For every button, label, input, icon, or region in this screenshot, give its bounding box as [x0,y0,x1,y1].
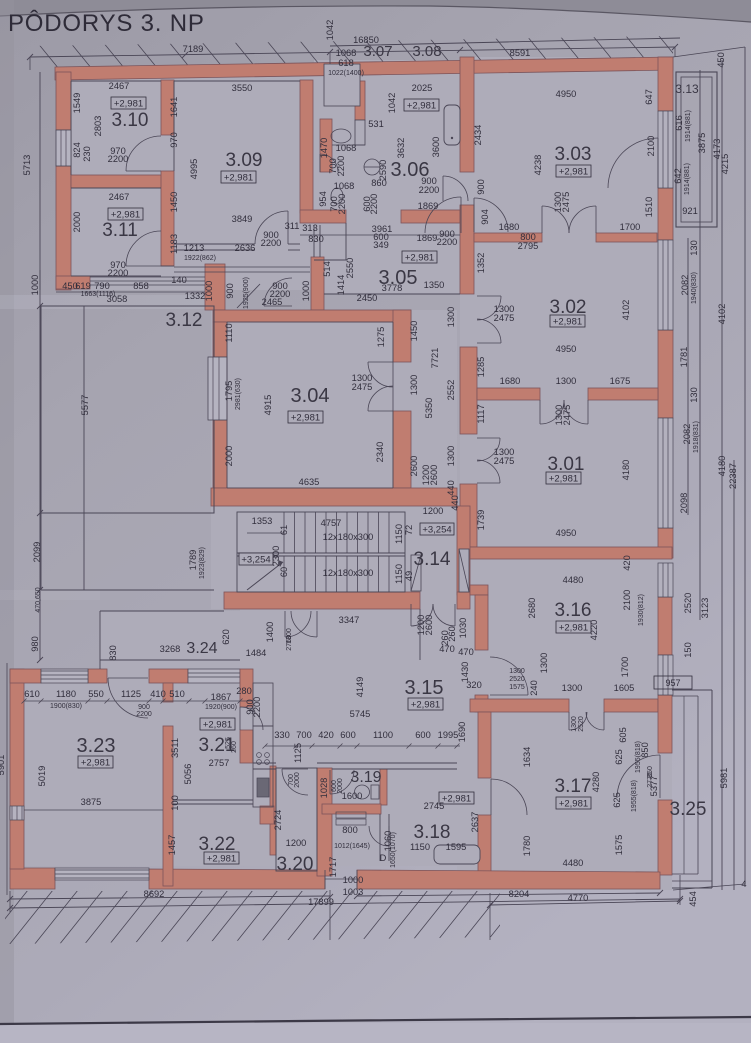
svg-text:PÔDORYS 3. NP: PÔDORYS 3. NP [8,9,205,37]
svg-text:+2,981: +2,981 [549,474,578,485]
svg-text:3.18: 3.18 [414,822,451,843]
svg-text:3.24: 3.24 [186,640,217,657]
svg-text:620: 620 [221,629,231,645]
svg-text:1914(881): 1914(881) [684,163,691,195]
svg-text:3123: 3123 [700,598,710,619]
svg-text:17899: 17899 [308,897,334,907]
svg-text:2000: 2000 [224,446,234,467]
svg-text:4915: 4915 [263,395,273,416]
svg-text:2467: 2467 [109,81,130,91]
svg-text:1634: 1634 [522,747,532,768]
svg-text:900: 900 [138,704,150,711]
svg-text:72: 72 [404,525,414,535]
svg-text:2757: 2757 [209,758,230,768]
svg-text:1484: 1484 [246,648,267,658]
svg-text:858: 858 [133,281,149,291]
svg-text:100: 100 [170,795,180,811]
svg-text:2520: 2520 [509,676,525,683]
svg-text:16850: 16850 [353,35,379,45]
svg-text:1400: 1400 [265,622,275,643]
svg-text:3.09: 3.09 [226,150,263,171]
svg-text:1350: 1350 [424,280,445,290]
svg-text:1781: 1781 [679,347,689,368]
svg-text:+2,981: +2,981 [559,167,588,178]
svg-text:1900(830): 1900(830) [50,703,82,710]
svg-text:140: 140 [171,275,187,285]
svg-text:1595: 1595 [446,842,467,852]
svg-text:1700: 1700 [620,657,630,678]
svg-text:2200: 2200 [419,185,440,195]
svg-text:3.20: 3.20 [277,854,314,875]
svg-text:1717: 1717 [328,857,338,878]
svg-text:550: 550 [88,689,104,699]
svg-text:531: 531 [368,119,384,129]
svg-text:1869: 1869 [418,201,439,211]
svg-text:454: 454 [688,891,698,907]
svg-text:313: 313 [302,223,318,233]
svg-text:510: 510 [169,689,185,699]
svg-text:4215: 4215 [720,154,730,175]
svg-text:3.07: 3.07 [363,43,392,60]
svg-text:1028: 1028 [319,778,329,799]
svg-text:3.10: 3.10 [112,110,149,131]
svg-text:8204: 8204 [509,889,530,899]
svg-text:514: 514 [322,261,332,277]
svg-text:1200: 1200 [423,506,444,516]
svg-text:130: 130 [689,387,699,403]
svg-text:+2,981: +2,981 [405,253,434,264]
svg-text:824: 824 [72,142,82,158]
svg-text:3.14: 3.14 [414,549,451,570]
svg-text:1150: 1150 [394,524,404,544]
svg-text:5901: 5901 [0,755,6,776]
svg-text:2981(630): 2981(630) [235,378,242,410]
svg-text:3.13: 3.13 [675,82,699,96]
svg-text:3268: 3268 [160,644,181,654]
svg-text:12x180x300: 12x180x300 [323,568,374,578]
svg-text:2520: 2520 [683,593,693,614]
svg-text:311: 311 [285,221,300,231]
svg-text:3632: 3632 [396,138,406,159]
svg-text:4950: 4950 [556,528,577,538]
svg-text:1042: 1042 [325,20,335,41]
svg-text:1300: 1300 [446,446,456,467]
svg-text:1300: 1300 [409,375,419,396]
svg-text:957: 957 [665,678,680,688]
svg-text:1549: 1549 [72,93,82,114]
svg-text:260: 260 [447,626,457,642]
svg-text:1739: 1739 [476,510,486,531]
svg-text:+2,981: +2,981 [291,413,320,424]
svg-text:2000: 2000 [337,778,344,794]
svg-text:49: 49 [404,571,414,581]
svg-text:3550: 3550 [232,83,253,93]
svg-text:+2,981: +2,981 [442,794,471,805]
svg-text:1930(812): 1930(812) [638,594,645,626]
svg-text:3.16: 3.16 [555,600,592,621]
svg-text:2082: 2082 [680,275,690,296]
svg-text:1867: 1867 [211,692,232,702]
svg-text:800: 800 [342,825,358,835]
svg-text:2200: 2200 [437,237,458,247]
svg-text:790: 790 [94,281,110,291]
svg-text:1300: 1300 [509,668,525,675]
svg-text:2760: 2760 [286,635,293,651]
svg-text:1275: 1275 [376,327,386,348]
svg-text:1300: 1300 [556,376,577,386]
svg-text:2200: 2200 [108,268,129,278]
svg-text:2803: 2803 [93,116,103,137]
svg-text:1125: 1125 [121,689,141,699]
svg-text:3.15: 3.15 [405,677,444,699]
svg-text:470,650: 470,650 [35,587,42,612]
svg-text:1352: 1352 [476,253,486,274]
svg-text:349: 349 [373,240,389,250]
svg-text:1795: 1795 [224,381,234,402]
svg-text:230: 230 [82,146,92,162]
svg-text:240: 240 [529,680,539,696]
svg-text:3.17: 3.17 [555,776,592,797]
svg-text:4180: 4180 [717,456,727,477]
svg-text:3778: 3778 [382,283,403,293]
svg-text:5745: 5745 [350,709,371,719]
svg-text:3.11: 3.11 [102,220,138,241]
svg-text:980: 980 [30,636,40,652]
svg-text:1068: 1068 [336,48,357,58]
svg-text:4757: 4757 [321,518,342,528]
svg-text:2795: 2795 [518,241,539,251]
svg-text:1510: 1510 [644,197,654,218]
svg-text:8591: 8591 [510,48,531,58]
svg-text:1000: 1000 [30,275,40,296]
svg-text:1285: 1285 [476,357,486,378]
svg-text:3875: 3875 [81,797,102,807]
svg-text:2600: 2600 [409,456,419,477]
svg-text:2200: 2200 [261,238,282,248]
svg-text:2025: 2025 [412,83,433,93]
svg-text:1641: 1641 [169,97,179,118]
svg-text:260: 260 [231,741,238,753]
svg-text:1940(830): 1940(830) [691,272,698,304]
svg-text:1030: 1030 [458,618,468,639]
svg-text:1430: 1430 [460,662,470,683]
svg-text:5377: 5377 [649,776,659,797]
svg-text:1150: 1150 [410,842,430,852]
svg-text:1663(1116): 1663(1116) [81,291,116,298]
svg-text:1690: 1690 [457,722,467,743]
svg-text:1920(900): 1920(900) [205,704,237,711]
svg-text:1042: 1042 [387,93,397,114]
svg-text:61: 61 [279,525,289,535]
svg-text:605: 605 [618,727,628,743]
svg-text:900: 900 [476,179,486,195]
svg-text:700: 700 [296,730,312,740]
svg-text:1923(829): 1923(829) [199,547,206,579]
svg-text:1869: 1869 [417,233,438,243]
svg-text:2100: 2100 [622,590,632,611]
svg-text:1000: 1000 [301,281,311,302]
svg-text:1117: 1117 [476,404,486,423]
svg-text:2745: 2745 [424,801,445,811]
svg-text:2200: 2200 [136,711,152,718]
svg-text:1675: 1675 [610,376,631,386]
svg-text:+3,254: +3,254 [241,555,270,566]
svg-text:2550: 2550 [345,258,355,279]
svg-text:420: 420 [318,730,334,740]
svg-text:1450: 1450 [169,192,179,213]
svg-text:1700: 1700 [620,222,641,232]
svg-text:618: 618 [338,58,354,68]
svg-text:1605: 1605 [614,683,635,693]
svg-text:2467: 2467 [109,192,130,202]
svg-text:2475: 2475 [561,192,571,213]
svg-text:600: 600 [415,730,431,740]
svg-text:2100: 2100 [646,136,656,157]
svg-text:4: 4 [741,879,746,889]
svg-text:1125: 1125 [293,743,303,763]
svg-text:470: 470 [458,647,474,657]
svg-text:4238: 4238 [533,155,543,176]
svg-text:4635: 4635 [299,477,320,487]
svg-text:60: 60 [279,567,289,577]
svg-text:4770: 4770 [568,893,589,903]
svg-text:2680: 2680 [527,598,537,619]
svg-text:5981: 5981 [719,768,729,789]
svg-text:1300: 1300 [571,716,578,732]
svg-text:4220: 4220 [589,620,599,641]
svg-text:600: 600 [340,730,356,740]
svg-text:860: 860 [371,178,387,188]
svg-text:1100: 1100 [373,730,393,740]
svg-text:3.04: 3.04 [291,385,330,407]
svg-text:2475: 2475 [494,456,515,466]
svg-text:1353: 1353 [252,516,273,526]
svg-text:921: 921 [682,206,698,216]
svg-text:440: 440 [446,480,456,496]
svg-text:330: 330 [274,730,290,740]
svg-text:5577: 5577 [80,395,90,416]
svg-text:5019: 5019 [37,766,47,787]
svg-text:1068: 1068 [334,181,355,191]
svg-text:+2,981: +2,981 [81,758,110,769]
svg-text:1183: 1183 [169,234,179,254]
svg-text:2637: 2637 [470,812,480,833]
svg-text:1003: 1003 [343,887,364,897]
svg-text:440: 440 [450,495,460,511]
svg-text:+2,981: +2,981 [111,210,140,221]
svg-text:2200: 2200 [252,697,262,718]
svg-text:2082: 2082 [682,424,692,445]
svg-text:5056: 5056 [183,764,193,785]
svg-text:3875: 3875 [697,133,707,154]
svg-text:1068: 1068 [336,143,357,153]
svg-text:830: 830 [308,234,324,244]
svg-text:2520: 2520 [578,716,585,732]
svg-text:2300: 2300 [271,546,281,567]
svg-text:1470: 1470 [319,138,329,159]
svg-text:+2,981: +2,981 [224,173,253,184]
svg-text:1000: 1000 [343,875,364,885]
svg-text:130: 130 [689,240,699,256]
svg-text:619: 619 [75,281,91,291]
svg-text:4102: 4102 [621,300,631,321]
svg-text:4480: 4480 [563,575,584,585]
svg-text:+2,981: +2,981 [559,799,588,810]
svg-text:2200: 2200 [108,154,129,164]
svg-text:2200: 2200 [336,156,346,177]
svg-text:12x180x300: 12x180x300 [323,532,374,542]
svg-text:1200: 1200 [286,838,307,848]
svg-text:1457: 1457 [167,835,177,856]
svg-text:1780: 1780 [522,836,532,857]
svg-text:1300: 1300 [446,307,456,328]
svg-text:+2,981: +2,981 [407,101,436,112]
svg-text:3.19: 3.19 [350,769,381,786]
svg-text:610: 610 [24,689,40,699]
svg-text:+2,981: +2,981 [203,720,232,731]
svg-text:1925(900): 1925(900) [243,277,250,309]
svg-text:4102: 4102 [717,304,727,325]
svg-text:1995: 1995 [438,730,459,740]
svg-text:1918(831): 1918(831) [693,421,700,453]
svg-text:616: 616 [674,115,684,131]
svg-text:625: 625 [612,792,622,808]
svg-text:2600: 2600 [429,465,439,486]
svg-text:22387: 22387 [728,463,738,489]
svg-text:647: 647 [644,89,654,105]
svg-text:1022(1400): 1022(1400) [328,70,364,77]
svg-text:1680: 1680 [499,222,520,232]
svg-text:+3,254: +3,254 [422,525,451,536]
svg-text:+2,981: +2,981 [411,700,440,711]
svg-text:1000: 1000 [204,281,214,302]
svg-text:3.03: 3.03 [555,144,592,165]
svg-text:2000: 2000 [72,212,82,233]
svg-text:1150: 1150 [394,564,404,584]
svg-text:7189: 7189 [183,44,204,54]
svg-text:625: 625 [614,749,624,765]
svg-text:450: 450 [716,52,726,68]
svg-text:1955(818): 1955(818) [631,780,638,812]
svg-text:1600: 1600 [342,791,363,801]
svg-text:1300: 1300 [539,653,549,674]
svg-text:2724: 2724 [273,810,283,831]
svg-text:150: 150 [683,642,693,658]
svg-text:1180: 1180 [56,689,76,699]
svg-text:3347: 3347 [339,615,360,625]
svg-text:954: 954 [318,191,328,207]
svg-text:280: 280 [236,686,252,696]
svg-text:2475: 2475 [562,405,572,426]
svg-text:2636: 2636 [235,243,256,253]
svg-text:3600: 3600 [431,137,441,158]
svg-text:5350: 5350 [424,398,434,419]
svg-text:1332: 1332 [185,291,206,301]
svg-text:3511: 3511 [170,738,180,758]
svg-text:900: 900 [225,283,235,299]
svg-text:2434: 2434 [473,125,483,146]
svg-text:1300: 1300 [562,683,583,693]
svg-text:+2,981: +2,981 [553,317,582,328]
svg-text:830: 830 [108,645,118,661]
svg-text:2099: 2099 [32,542,42,563]
svg-text:1575: 1575 [614,835,624,856]
svg-text:904: 904 [480,209,490,225]
svg-text:3849: 3849 [232,214,253,224]
svg-text:970: 970 [169,132,179,148]
svg-text:2200: 2200 [369,194,379,215]
svg-text:1650(1070): 1650(1070) [390,832,397,868]
svg-text:2552: 2552 [446,380,456,401]
svg-text:4149: 4149 [355,677,365,698]
svg-text:410: 410 [150,689,166,699]
svg-text:2600: 2600 [424,615,434,636]
svg-text:+2,981: +2,981 [114,99,143,110]
svg-text:3.08: 3.08 [412,43,441,60]
svg-text:420: 420 [622,555,632,571]
svg-text:2475: 2475 [494,313,515,323]
svg-text:1914(881): 1914(881) [685,110,692,142]
svg-text:4950: 4950 [556,344,577,354]
svg-text:2450: 2450 [357,293,378,303]
svg-text:3.23: 3.23 [77,735,116,757]
svg-text:7721: 7721 [430,348,440,369]
svg-text:4995: 4995 [189,159,199,180]
svg-text:1012(1645): 1012(1645) [334,843,370,850]
svg-text:2098: 2098 [679,493,689,514]
svg-text:4180: 4180 [621,460,631,481]
svg-text:1213: 1213 [184,243,205,253]
svg-text:4480: 4480 [563,858,584,868]
svg-text:470: 470 [439,644,455,654]
svg-text:2340: 2340 [375,442,385,463]
svg-text:1789: 1789 [188,550,198,571]
svg-text:5713: 5713 [22,155,32,176]
svg-text:3.12: 3.12 [166,310,203,331]
svg-text:1955(818): 1955(818) [635,741,642,773]
svg-text:8692: 8692 [144,889,165,899]
svg-text:4280: 4280 [591,772,601,793]
svg-text:1922(862): 1922(862) [184,255,216,262]
svg-text:2465: 2465 [262,297,283,307]
svg-text:2200: 2200 [337,194,347,215]
svg-text:D: D [380,853,387,863]
svg-text:1575: 1575 [509,684,525,691]
svg-text:642: 642 [673,168,683,184]
svg-text:+2,981: +2,981 [207,854,236,865]
svg-text:+2,981: +2,981 [559,623,588,634]
svg-text:1680: 1680 [500,376,521,386]
svg-text:1450: 1450 [409,321,419,342]
svg-text:2475: 2475 [352,382,373,392]
svg-text:4950: 4950 [556,89,577,99]
svg-text:2000: 2000 [294,772,301,788]
svg-text:3.25: 3.25 [670,799,707,820]
svg-text:1110: 1110 [224,323,234,342]
